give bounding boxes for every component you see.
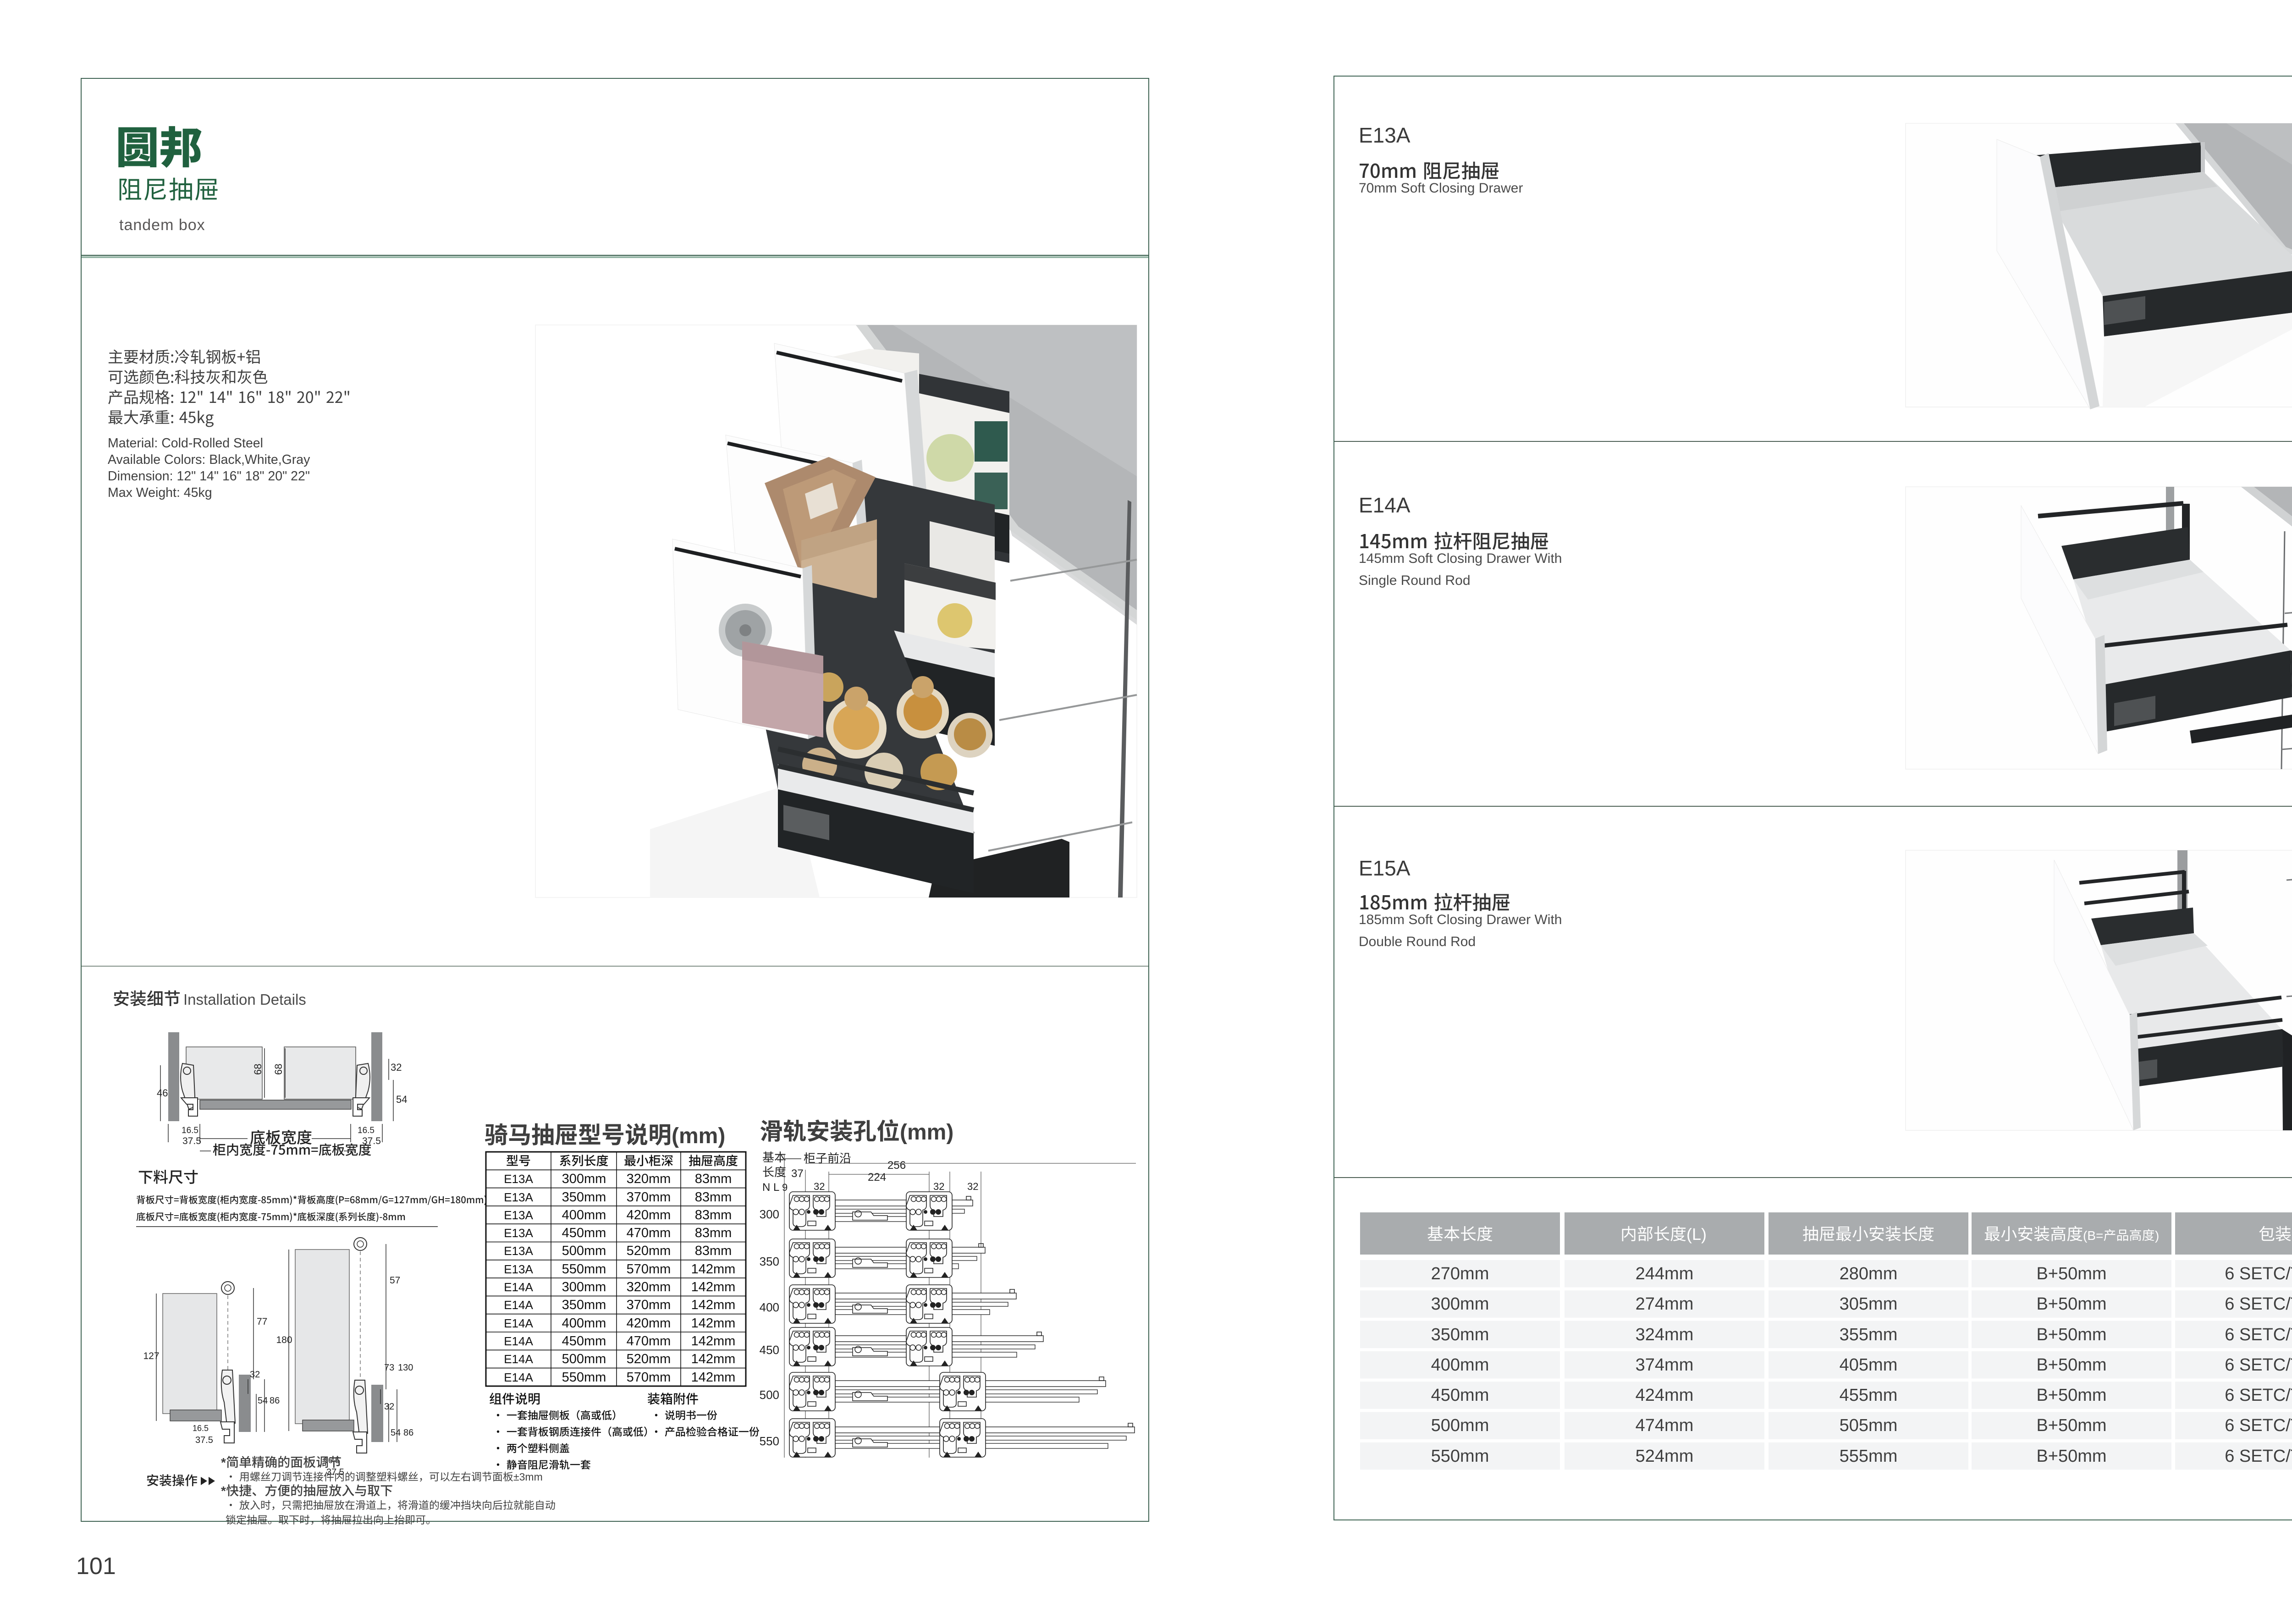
svg-text:550mm: 550mm (562, 1262, 606, 1277)
svg-text:142mm: 142mm (691, 1334, 736, 1349)
svg-text:E15A: E15A (1359, 856, 1410, 880)
svg-text:B+50mm: B+50mm (2036, 1355, 2106, 1375)
svg-text:E14A: E14A (504, 1316, 533, 1330)
svg-text:E14A: E14A (504, 1298, 533, 1312)
svg-text:Material: Cold-Rolled Steel: Material: Cold-Rolled Steel (108, 436, 263, 451)
svg-text:E13A: E13A (504, 1226, 533, 1240)
svg-text:374mm: 374mm (1636, 1355, 1694, 1375)
svg-text:101: 101 (76, 1553, 116, 1580)
svg-text:16.5: 16.5 (193, 1424, 209, 1433)
svg-text:145mm Soft Closing Drawer With: 145mm Soft Closing Drawer With (1359, 551, 1562, 566)
svg-text:142mm: 142mm (691, 1280, 736, 1294)
svg-text:244mm: 244mm (1636, 1264, 1694, 1283)
svg-text:tandem box: tandem box (119, 216, 205, 234)
svg-text:37.5: 37.5 (195, 1435, 213, 1445)
svg-text:6 SETC/TNB: 6 SETC/TNB (2225, 1355, 2292, 1375)
svg-text:37.5: 37.5 (182, 1136, 201, 1146)
svg-text:37: 37 (791, 1167, 804, 1180)
svg-text:B+50mm: B+50mm (2036, 1294, 2106, 1314)
svg-text:83mm: 83mm (695, 1172, 732, 1186)
svg-text:68: 68 (273, 1064, 284, 1075)
svg-text:6 SETC/TNB: 6 SETC/TNB (2225, 1447, 2292, 1466)
svg-text:270mm: 270mm (1431, 1264, 1489, 1283)
svg-text:83mm: 83mm (695, 1190, 732, 1205)
svg-text:280mm: 280mm (1840, 1264, 1898, 1283)
svg-text:300: 300 (760, 1207, 779, 1221)
svg-text:450mm: 450mm (1431, 1386, 1489, 1405)
svg-text:68: 68 (252, 1064, 264, 1075)
svg-text:(B=: (B= (2083, 1228, 2103, 1243)
svg-text:350mm: 350mm (562, 1298, 606, 1312)
svg-text:Installation Details: Installation Details (183, 991, 306, 1008)
svg-text:*: * (221, 1455, 226, 1470)
svg-text:142mm: 142mm (691, 1370, 736, 1385)
svg-text:57: 57 (390, 1275, 400, 1286)
svg-text:470mm: 470mm (627, 1334, 671, 1349)
svg-text:32: 32 (967, 1181, 978, 1192)
svg-text:6 SETC/TNB: 6 SETC/TNB (2225, 1416, 2292, 1435)
svg-text:370mm: 370mm (627, 1190, 671, 1205)
svg-text:Double Round Rod: Double Round Rod (1359, 934, 1476, 949)
svg-text:180: 180 (276, 1335, 292, 1345)
svg-text:): ) (2155, 1228, 2159, 1243)
svg-text:185mm Soft Closing Drawer With: 185mm Soft Closing Drawer With (1359, 912, 1562, 927)
svg-text:6 SETC/TNB: 6 SETC/TNB (2225, 1325, 2292, 1344)
svg-text:B+50mm: B+50mm (2036, 1264, 2106, 1283)
svg-text:305mm: 305mm (1840, 1294, 1898, 1314)
svg-text:320mm: 320mm (627, 1172, 671, 1186)
svg-text:400mm: 400mm (562, 1208, 606, 1222)
svg-text:±3mm: ±3mm (513, 1471, 543, 1483)
svg-text:54: 54 (396, 1094, 407, 1105)
svg-text:83mm: 83mm (695, 1244, 732, 1258)
svg-text:E13A: E13A (504, 1208, 533, 1222)
svg-text:54: 54 (391, 1428, 401, 1438)
svg-text:570mm: 570mm (627, 1262, 671, 1277)
svg-text:370mm: 370mm (627, 1298, 671, 1312)
svg-text:54: 54 (258, 1396, 268, 1406)
svg-text:520mm: 520mm (627, 1244, 671, 1258)
svg-text:524mm: 524mm (1636, 1447, 1694, 1466)
svg-text:*: * (221, 1484, 226, 1498)
svg-text:470mm: 470mm (627, 1226, 671, 1240)
svg-text:320mm: 320mm (627, 1280, 671, 1294)
svg-text:350: 350 (760, 1255, 779, 1268)
svg-text:405mm: 405mm (1840, 1355, 1898, 1375)
svg-text:324mm: 324mm (1636, 1325, 1694, 1344)
svg-text:B+50mm: B+50mm (2036, 1416, 2106, 1435)
svg-text:520mm: 520mm (627, 1352, 671, 1366)
svg-text:424mm: 424mm (1636, 1386, 1694, 1405)
svg-text:83mm: 83mm (695, 1226, 732, 1240)
svg-text:E14A: E14A (504, 1280, 533, 1294)
svg-text:400: 400 (760, 1300, 779, 1314)
svg-text:6 SETC/TNB: 6 SETC/TNB (2225, 1294, 2292, 1314)
svg-text:32: 32 (391, 1062, 402, 1073)
svg-text:505mm: 505mm (1840, 1416, 1898, 1435)
svg-text:46: 46 (157, 1087, 168, 1099)
svg-text:73: 73 (384, 1363, 394, 1373)
svg-text:500mm: 500mm (562, 1244, 606, 1258)
svg-text:400mm: 400mm (1431, 1355, 1489, 1375)
svg-text:32: 32 (814, 1181, 825, 1192)
svg-text:420mm: 420mm (627, 1208, 671, 1222)
svg-text:142mm: 142mm (691, 1316, 736, 1331)
svg-text:Max Weight: 45kg: Max Weight: 45kg (108, 485, 212, 500)
svg-text:E14A: E14A (1359, 493, 1410, 517)
svg-text:N L: N L (762, 1181, 779, 1194)
svg-text:550mm: 550mm (1431, 1447, 1489, 1466)
svg-text:86: 86 (403, 1428, 413, 1438)
svg-text:E13A: E13A (504, 1262, 533, 1276)
svg-text:127: 127 (143, 1351, 159, 1361)
svg-text:Available Colors: Black,White,: Available Colors: Black,White,Gray (108, 452, 310, 467)
svg-text:274mm: 274mm (1636, 1294, 1694, 1314)
svg-text:E13A: E13A (504, 1190, 533, 1204)
svg-text:450mm: 450mm (562, 1226, 606, 1240)
svg-text:16.5: 16.5 (358, 1126, 375, 1135)
svg-text:E13A: E13A (1359, 123, 1410, 147)
svg-text:474mm: 474mm (1636, 1416, 1694, 1435)
svg-text:16.5: 16.5 (182, 1126, 198, 1135)
svg-text:E13A: E13A (504, 1172, 533, 1186)
svg-text:B+50mm: B+50mm (2036, 1325, 2106, 1344)
svg-text:Dimension: 12" 14" 16" 18" 20": Dimension: 12" 14" 16" 18" 20" 22" (108, 469, 310, 484)
svg-text:570mm: 570mm (627, 1370, 671, 1385)
svg-text:(mm): (mm) (672, 1124, 725, 1148)
svg-text:224: 224 (868, 1171, 886, 1184)
svg-text:E13A: E13A (504, 1244, 533, 1258)
svg-text:550mm: 550mm (562, 1370, 606, 1385)
svg-text:E14A: E14A (504, 1334, 533, 1348)
svg-text:B+50mm: B+50mm (2036, 1447, 2106, 1466)
svg-text:32: 32 (384, 1402, 394, 1412)
svg-text:300mm: 300mm (1431, 1294, 1489, 1314)
svg-text:9: 9 (782, 1182, 788, 1193)
svg-text:142mm: 142mm (691, 1352, 736, 1366)
svg-text:142mm: 142mm (691, 1298, 736, 1312)
svg-text:500mm: 500mm (1431, 1416, 1489, 1435)
svg-text:32: 32 (250, 1370, 260, 1380)
svg-text:B+50mm: B+50mm (2036, 1386, 2106, 1405)
svg-text:83mm: 83mm (695, 1208, 732, 1222)
svg-text:555mm: 555mm (1840, 1447, 1898, 1466)
svg-text:450: 450 (760, 1343, 779, 1357)
svg-text:500: 500 (760, 1388, 779, 1402)
svg-text:Single Round Rod: Single Round Rod (1359, 573, 1471, 588)
svg-text:6 SETC/TNB: 6 SETC/TNB (2225, 1386, 2292, 1405)
svg-text:70mm Soft Closing Drawer: 70mm Soft Closing Drawer (1359, 181, 1523, 196)
svg-text:130: 130 (398, 1363, 413, 1373)
svg-text:E14A: E14A (504, 1352, 533, 1366)
svg-text:77: 77 (257, 1316, 267, 1327)
svg-text:E14A: E14A (504, 1371, 533, 1384)
svg-text:500mm: 500mm (562, 1352, 606, 1366)
svg-text:450mm: 450mm (562, 1334, 606, 1349)
svg-text:(mm): (mm) (900, 1120, 953, 1145)
svg-text:32: 32 (933, 1181, 944, 1192)
svg-text:350mm: 350mm (1431, 1325, 1489, 1344)
svg-text:6 SETC/TNB: 6 SETC/TNB (2225, 1264, 2292, 1283)
svg-text:256: 256 (887, 1159, 906, 1172)
svg-text:300mm: 300mm (562, 1172, 606, 1186)
svg-text:355mm: 355mm (1840, 1325, 1898, 1344)
svg-text:420mm: 420mm (627, 1316, 671, 1331)
svg-text:300mm: 300mm (562, 1280, 606, 1294)
svg-text:400mm: 400mm (562, 1316, 606, 1331)
svg-text:142mm: 142mm (691, 1262, 736, 1277)
svg-text:550: 550 (760, 1434, 779, 1448)
svg-text:86: 86 (270, 1396, 280, 1406)
svg-text:(L): (L) (1686, 1225, 1707, 1244)
svg-text:455mm: 455mm (1840, 1386, 1898, 1405)
svg-text:350mm: 350mm (562, 1190, 606, 1205)
